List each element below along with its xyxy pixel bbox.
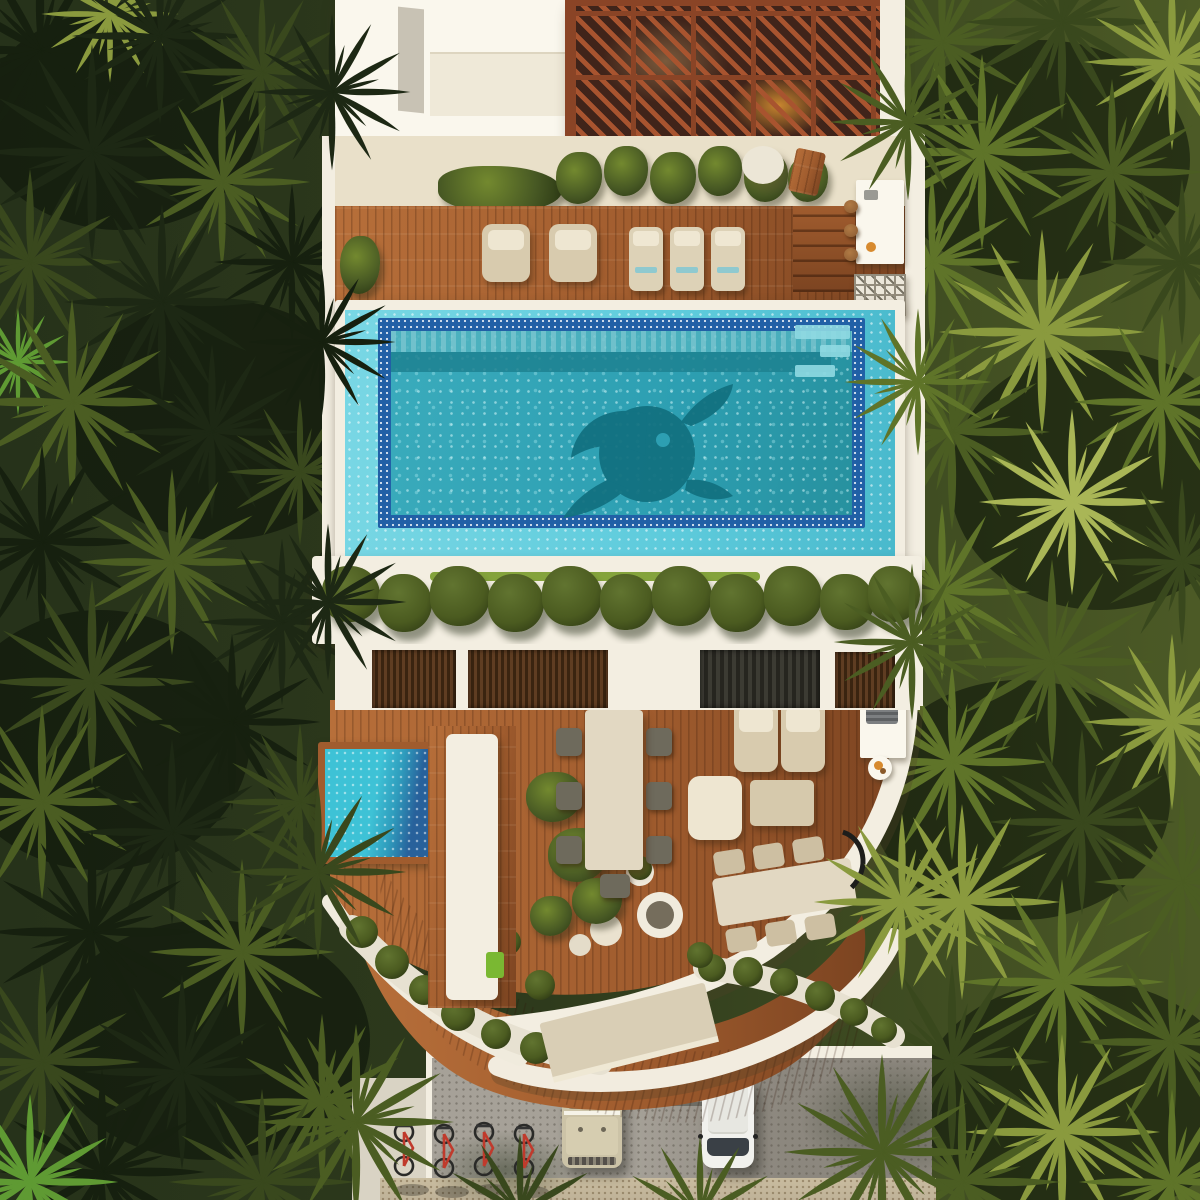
overhanging-palms xyxy=(0,0,1200,1200)
aerial-villa-render xyxy=(0,0,1200,1200)
edge-palm-crowns xyxy=(230,14,992,1200)
